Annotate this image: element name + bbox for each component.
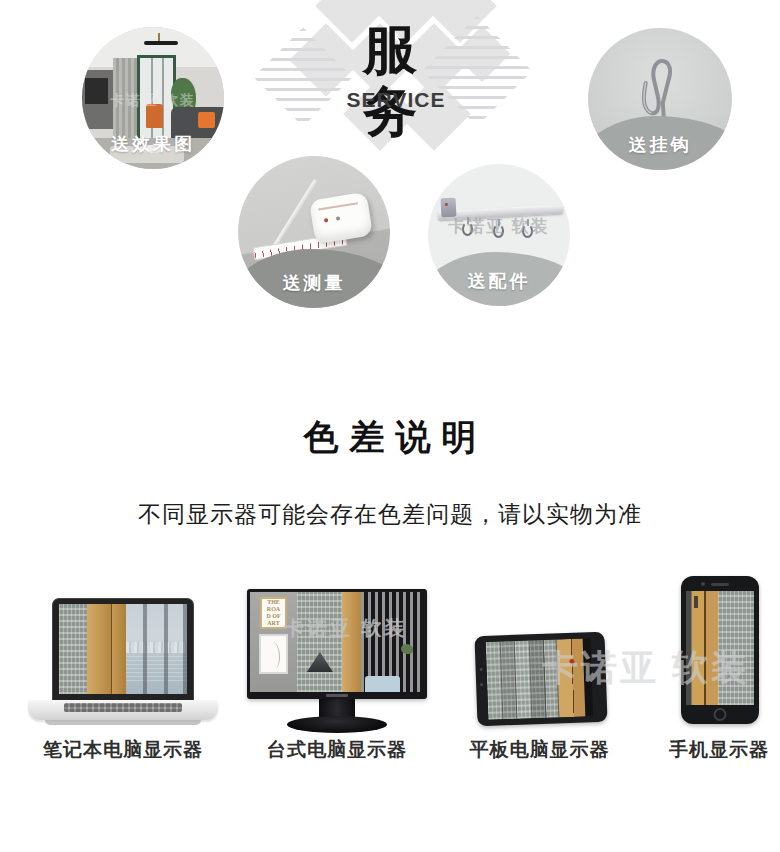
curtain-fold-gold: [111, 604, 125, 694]
window-mullion: [151, 58, 153, 143]
monitor-brand-mark: [326, 694, 348, 697]
phone-body: [681, 576, 759, 724]
service-subtitle: SERVICE: [298, 88, 482, 112]
service-item-label: 送测量: [238, 271, 390, 295]
phone-home-button: [714, 708, 727, 721]
tablet-mockup: [474, 632, 607, 726]
desktop-monitor-mockup: THE ROAD OF ART: [247, 589, 427, 733]
curtain-hook-glider: [462, 222, 473, 236]
service-item-accessories: 卡诺亚 软装 送配件: [428, 164, 570, 306]
picture-frame: [259, 634, 288, 674]
device-label-phone: 手机显示器: [663, 737, 775, 763]
window-mullion: [143, 604, 147, 694]
wall-with-frames: THE ROAD OF ART: [250, 592, 297, 692]
tv: [85, 78, 108, 104]
tablet-camera-icon: [480, 668, 483, 671]
curtain-fold-gold: [342, 592, 361, 692]
window-mullion: [164, 604, 168, 694]
device-label-desktop: 台式电脑显示器: [247, 737, 427, 763]
tablet-button-icon: [480, 683, 483, 686]
laptop-keyboard: [64, 703, 182, 712]
service-item-label: 送配件: [428, 269, 570, 293]
curtain-fold-gold: [557, 639, 585, 718]
phone-camera-icon: [701, 582, 705, 586]
city-skyline: [126, 642, 187, 654]
service-item-measure: 送测量: [238, 156, 390, 308]
curtain-fold-gray: [59, 604, 87, 694]
track-end-bracket: [440, 198, 456, 218]
tablet-screen: [486, 638, 594, 720]
service-title-block: 服务 SERVICE: [298, 2, 482, 134]
orange-armchair: [146, 104, 163, 128]
laptop-mockup: [28, 598, 218, 725]
service-item-label: 送效果图: [82, 132, 224, 156]
service-item-hooks: 送挂钩: [588, 28, 732, 170]
laptop-front-edge: [45, 720, 201, 725]
phone-screen: [686, 591, 754, 705]
monitor-stand-base: [287, 716, 387, 733]
line-art-figure: [268, 642, 280, 668]
curtain-fold-gray: [297, 592, 342, 692]
window-mullion: [183, 604, 187, 694]
curtain-track: [438, 205, 563, 221]
curtain-hook-glider: [493, 224, 504, 238]
ceiling-lamp-icon: [144, 41, 178, 45]
monitor-screen: THE ROAD OF ART: [250, 592, 424, 692]
color-diff-title: 色差说明: [0, 414, 780, 461]
device-label-laptop: 笔记本电脑显示器: [28, 737, 218, 763]
tape-measure-icon: [309, 191, 373, 244]
device-label-tablet: 平板电脑显示器: [462, 737, 617, 763]
frame-text: THE ROAD OF ART: [265, 599, 281, 627]
window-city-view: [126, 604, 187, 694]
sofa: [365, 676, 399, 692]
promo-page: 服务 SERVICE 卡诺亚 软装 送效果图: [0, 0, 780, 852]
tablet-body: [474, 632, 607, 726]
service-title: 服务: [298, 18, 482, 142]
monitor-bezel: THE ROAD OF ART: [247, 589, 427, 699]
phone-mockup: [681, 576, 759, 724]
curtain-fold-gray: [530, 640, 546, 718]
plant: [401, 644, 413, 654]
picture-frame: THE ROAD OF ART: [260, 597, 287, 629]
pendant-lamp-icon: [307, 652, 333, 672]
balcony-window: [137, 55, 175, 143]
red-accent-dot: [569, 659, 574, 664]
color-diff-note: 不同显示器可能会存在色差问题，请以实物为准: [0, 499, 780, 530]
curtain-rod-detail: [694, 596, 698, 608]
sheer-window-view: [361, 592, 424, 692]
laptop-lid: [52, 598, 194, 700]
orange-pillow: [198, 112, 215, 128]
water-view: [126, 654, 187, 681]
window-mullion: [162, 58, 164, 143]
curtain-fold-gold: [87, 604, 111, 694]
laptop-base: [28, 700, 218, 720]
curtain-fold-gold: [692, 591, 718, 705]
service-item-effect-render: 卡诺亚 软装 送效果图: [82, 27, 224, 169]
curtain-hook-glider: [522, 224, 533, 238]
curtain-fold-gray: [718, 591, 754, 705]
phone-earpiece-icon: [711, 583, 729, 586]
gray-curtain: [113, 58, 137, 143]
laptop-screen: [59, 604, 187, 694]
service-item-label: 送挂钩: [588, 133, 732, 157]
